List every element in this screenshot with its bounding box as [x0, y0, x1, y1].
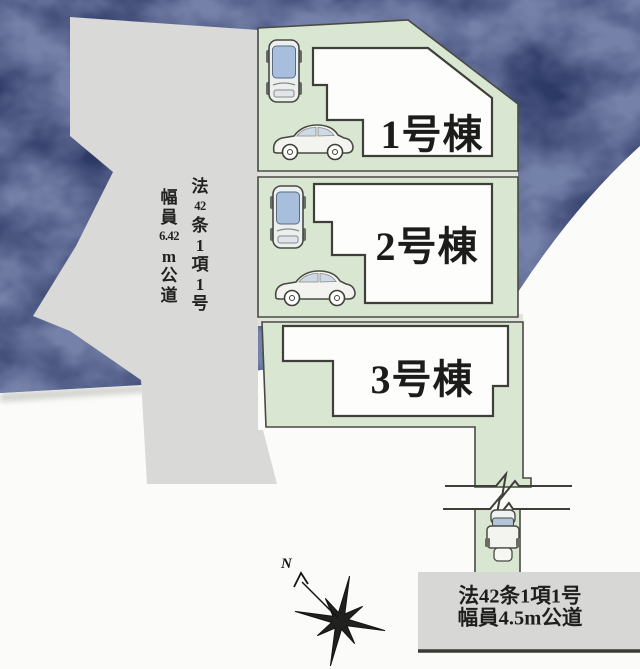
- west-road-label-char: 幅: [161, 188, 178, 208]
- minivan-top-icon: [270, 186, 306, 248]
- building-1-label: 1号棟: [381, 102, 484, 160]
- south-road-label-line2: 幅員4.5m公道: [458, 608, 583, 630]
- west-road-label-col1: 法42条1項1号: [188, 177, 212, 314]
- west-road-label-char: 項: [192, 255, 209, 275]
- north-label: N: [281, 556, 292, 573]
- west-road-label-char: 公: [161, 266, 178, 286]
- west-road-label: 幅員6.42m公道 法42条1項1号: [157, 177, 212, 314]
- building-2-label: 2号棟: [376, 214, 479, 272]
- site-plan-canvas: 1号棟 2号棟 3号棟 幅員6.42m公道 法42条1項1号 法42条1項1号 …: [0, 0, 640, 669]
- west-road-label-char: 42: [194, 197, 206, 217]
- west-road-label-char: 員: [161, 208, 178, 228]
- west-road-label-char: 道: [161, 286, 178, 306]
- south-road-label-line1: 法42条1項1号: [458, 587, 583, 609]
- west-road-label-char: 1: [196, 236, 205, 256]
- west-road-label-char: 1: [196, 275, 205, 295]
- building-3-label: 3号棟: [371, 347, 474, 405]
- minivan-top-icon: [266, 40, 302, 102]
- west-road-label-col2: 幅員6.42m公道: [157, 188, 181, 314]
- south-road-label: 法42条1項1号 幅員4.5m公道: [458, 587, 583, 630]
- west-road-label-char: 6.42: [159, 227, 179, 247]
- west-road-label-char: m: [162, 247, 176, 267]
- site-plan-drawing: [0, 0, 640, 669]
- west-road-label-char: 条: [192, 216, 209, 236]
- west-road-label-char: 法: [192, 177, 209, 197]
- west-road-label-char: 号: [192, 294, 209, 314]
